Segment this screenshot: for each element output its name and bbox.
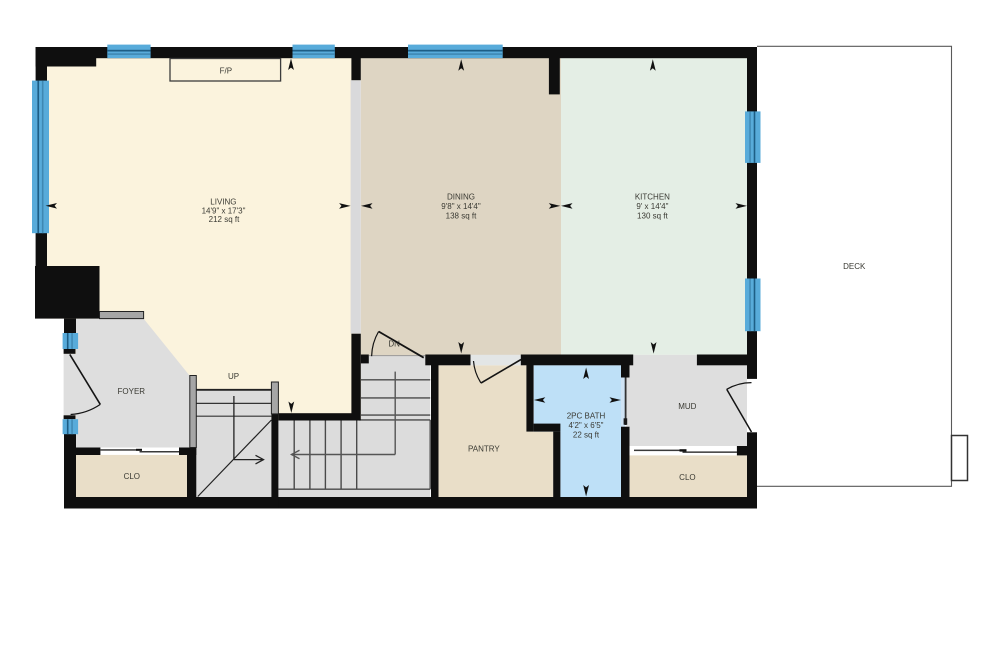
svg-text:212 sq ft: 212 sq ft [209,215,240,224]
svg-text:22 sq ft: 22 sq ft [573,431,600,440]
svg-text:4'2" x 6'5": 4'2" x 6'5" [569,421,604,430]
svg-text:9'8" x 14'4": 9'8" x 14'4" [441,202,481,211]
svg-text:KITCHEN: KITCHEN [635,193,670,202]
svg-text:CLO: CLO [679,473,695,482]
svg-text:138 sq ft: 138 sq ft [446,211,477,220]
svg-text:CLO: CLO [124,472,140,481]
svg-text:MUD: MUD [678,402,696,411]
svg-text:UP: UP [228,372,239,381]
svg-text:PANTRY: PANTRY [468,444,500,453]
svg-text:2PC BATH: 2PC BATH [567,412,606,421]
svg-text:9' x 14'4": 9' x 14'4" [636,202,668,211]
svg-text:DECK: DECK [843,262,866,271]
svg-text:DINING: DINING [447,193,475,202]
svg-text:FOYER: FOYER [118,387,146,396]
svg-text:130 sq ft: 130 sq ft [637,211,668,220]
svg-text:F/P: F/P [220,66,232,75]
svg-text:LIVING: LIVING [210,197,236,206]
